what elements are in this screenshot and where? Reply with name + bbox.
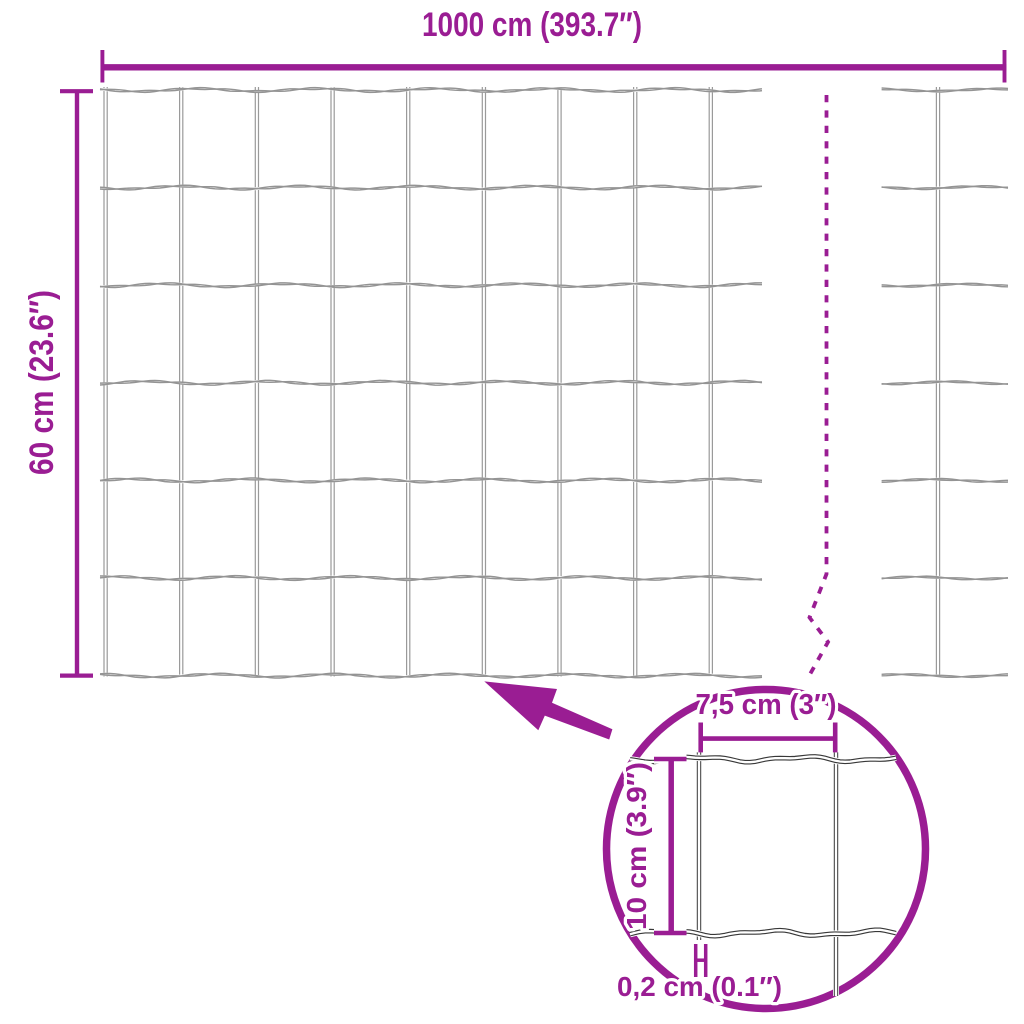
svg-text:60 cm (23.6″): 60 cm (23.6″) [23,290,61,475]
svg-text:0,2 cm (0.1″): 0,2 cm (0.1″) [617,971,782,1002]
svg-text:10 cm (3.9″): 10 cm (3.9″) [621,762,652,930]
svg-text:7,5 cm (3″): 7,5 cm (3″) [696,689,837,721]
svg-text:1000 cm (393.7″): 1000 cm (393.7″) [422,6,642,44]
